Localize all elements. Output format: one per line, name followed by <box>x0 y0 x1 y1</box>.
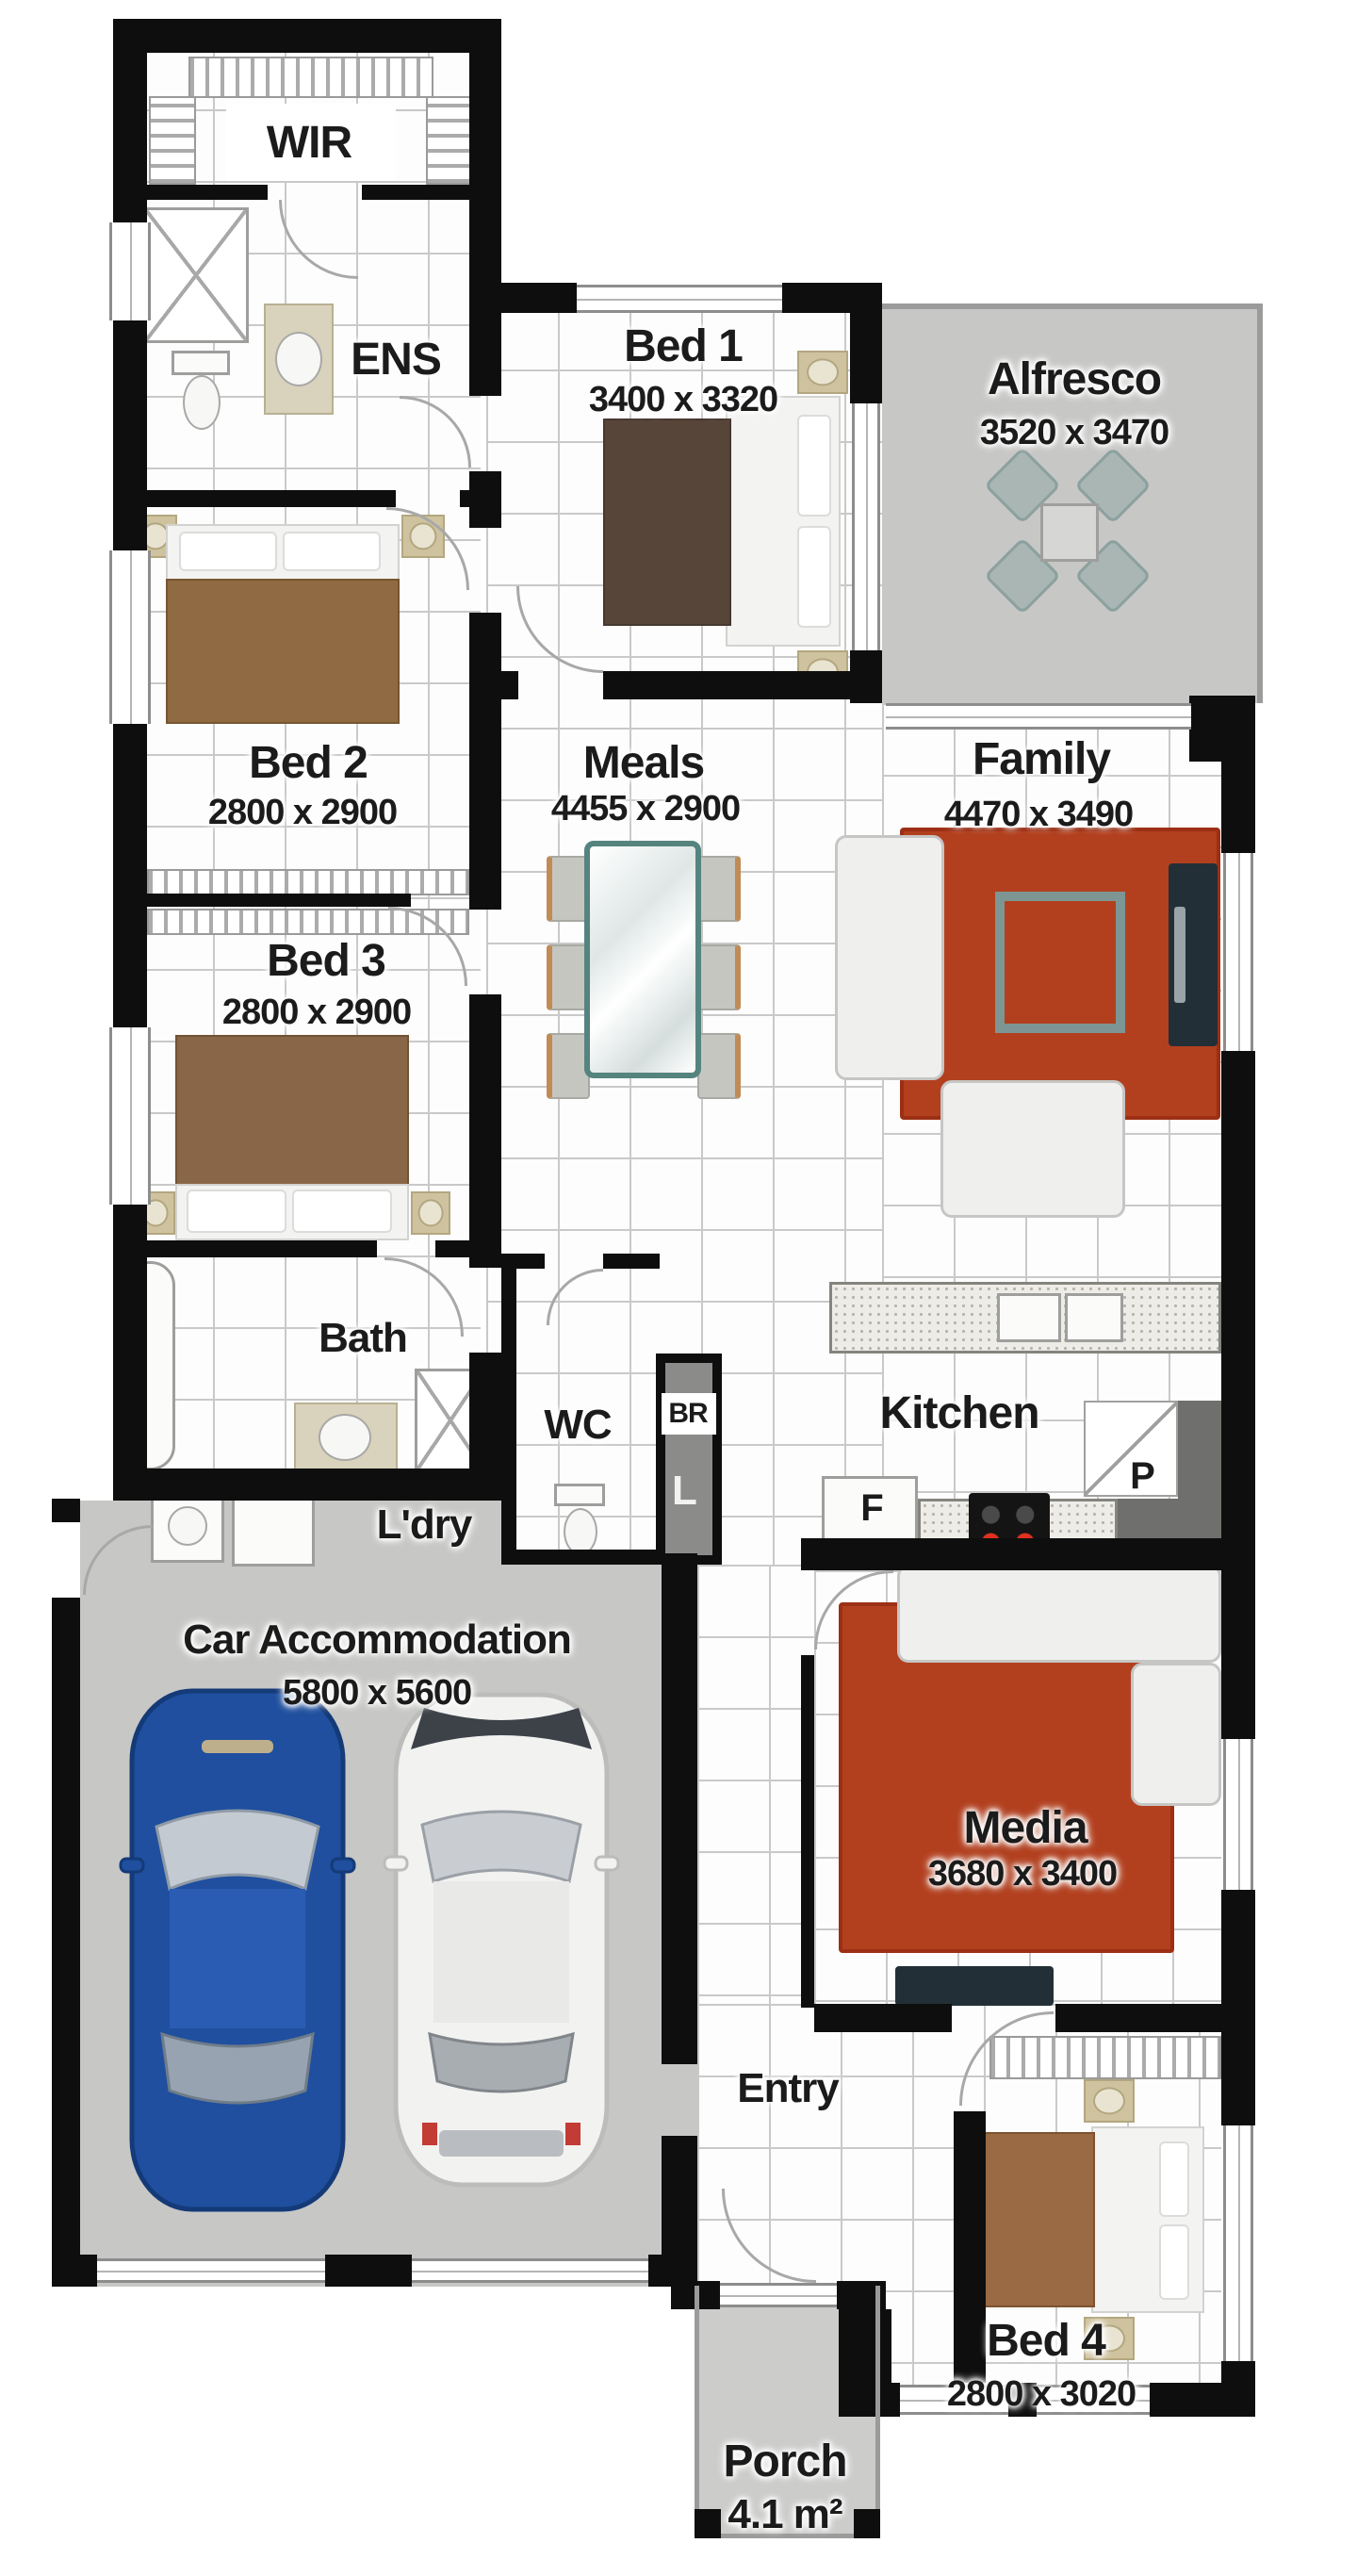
wall-segment <box>469 471 501 528</box>
room-label-linen: L <box>672 1470 696 1512</box>
media-sofa-right <box>1131 1663 1221 1806</box>
family-coffee-table <box>995 892 1125 1033</box>
bed1-pillow <box>797 526 831 628</box>
wall-segment <box>603 1254 660 1269</box>
floor-hall <box>697 1565 814 2008</box>
wir-shelving <box>188 57 433 98</box>
family-sofa-left <box>835 835 944 1080</box>
wall-segment <box>469 994 501 1268</box>
window-media <box>1223 1739 1253 1890</box>
meals-chair <box>697 944 741 1010</box>
wall-segment <box>662 1553 697 2064</box>
broom-closet <box>665 1363 712 1555</box>
wall-segment <box>147 1240 377 1257</box>
room-label-bed3: Bed 3 <box>267 939 385 984</box>
wall-segment <box>469 613 501 910</box>
wall-segment <box>1150 2383 1255 2417</box>
alfresco-table <box>1040 503 1099 562</box>
porch-edge <box>695 2286 699 2538</box>
room-label-meals: Meals <box>583 741 704 786</box>
car-white <box>383 1687 620 2192</box>
bed4-blanket <box>980 2132 1095 2307</box>
bed3-blanket <box>175 1035 409 1188</box>
window-ens <box>109 222 151 320</box>
wall-segment <box>469 19 501 396</box>
wall-segment <box>147 894 411 907</box>
porch-edge <box>875 2286 880 2538</box>
wall-segment <box>603 671 850 699</box>
ens-shower <box>143 207 249 343</box>
wall-segment <box>325 2255 412 2287</box>
bed3-side-table <box>411 1191 450 1235</box>
porch-post <box>854 2509 880 2538</box>
bed2-robe <box>147 869 469 895</box>
meals-chair <box>697 856 741 922</box>
room-label-wir: WIR <box>267 121 352 166</box>
room-label-ens: ENS <box>351 337 441 383</box>
laundry-trough-bowl <box>168 1506 207 1546</box>
family-tv <box>1174 907 1185 1003</box>
room-dims-bed3: 2800 x 2900 <box>222 994 411 1030</box>
bed1-pillow <box>797 415 831 517</box>
room-dims-bed1: 3400 x 3320 <box>589 382 777 418</box>
window-bed2 <box>109 550 151 724</box>
bed3-pillow <box>187 1190 286 1233</box>
window-bed1-alfresco <box>852 403 880 650</box>
room-dims-meals: 4455 x 2900 <box>551 791 740 827</box>
porch-post <box>695 2509 721 2538</box>
room-label-wc: WC <box>544 1404 611 1446</box>
room-label-media: Media <box>963 1806 1087 1851</box>
room-label-bath: Bath <box>319 1318 407 1359</box>
wall-segment <box>516 1254 545 1269</box>
wall-segment <box>801 1538 1244 1570</box>
wall-segment <box>113 1468 486 1501</box>
wall-segment <box>814 2004 952 2032</box>
room-dims-porch: 4.1 m² <box>728 2494 842 2535</box>
wall-segment <box>1055 2004 1221 2032</box>
wall-segment <box>52 1499 80 1522</box>
wc-toilet-tank <box>554 1484 605 1506</box>
wall-segment <box>113 19 501 53</box>
ens-toilet-tank <box>172 351 230 375</box>
wall-segment <box>362 185 484 200</box>
room-label-kitchen: Kitchen <box>879 1391 1038 1436</box>
label-fridge: F <box>860 1489 882 1527</box>
wall-segment <box>1221 1890 1255 2125</box>
bed2-pillow <box>283 532 381 571</box>
bed3-pillow <box>292 1190 392 1233</box>
room-dims-family: 4470 x 3490 <box>944 796 1133 832</box>
room-dims-garage: 5800 x 5600 <box>283 1675 471 1711</box>
wall-segment <box>501 1550 662 1565</box>
window-bed4-side <box>1223 2125 1253 2361</box>
room-label-family: Family <box>973 737 1110 782</box>
wall-segment <box>501 1254 516 1565</box>
room-label-broom: BR <box>668 1400 707 1428</box>
room-label-porch: Porch <box>723 2439 846 2485</box>
window-bed1 <box>577 285 782 313</box>
wall-segment <box>850 283 882 403</box>
ens-basin <box>275 332 322 386</box>
garage-door <box>412 2258 648 2283</box>
kitchen-sink <box>997 1293 1061 1342</box>
front-door-glazing <box>720 2283 837 2307</box>
wall-segment <box>839 2309 891 2417</box>
wall-segment <box>52 2255 97 2287</box>
garage-door <box>97 2258 325 2283</box>
bed1-side-table <box>797 351 848 394</box>
media-tv-unit <box>895 1966 1054 2006</box>
window-family <box>1223 853 1253 1051</box>
room-dims-media: 3680 x 3400 <box>928 1856 1117 1892</box>
bed2-pillow <box>179 532 277 571</box>
wall-segment <box>801 1655 814 2008</box>
room-label-bed4: Bed 4 <box>987 2319 1105 2364</box>
room-dims-bed2: 2800 x 2900 <box>208 795 397 830</box>
floor-plan: WIR ENS Bed 1 3400 x 3320 Alfresco 3520 … <box>0 0 1357 2576</box>
bed2-blanket <box>166 579 400 724</box>
sliding-door-alfresco <box>886 703 1191 730</box>
meals-table <box>584 841 701 1078</box>
room-label-bed2: Bed 2 <box>249 741 368 786</box>
room-label-bed1: Bed 1 <box>624 324 743 369</box>
media-sofa-top <box>897 1565 1221 1663</box>
room-label-garage: Car Accommodation <box>183 1619 571 1661</box>
kitchen-sink <box>1065 1293 1123 1342</box>
wall-segment <box>486 671 518 699</box>
room-dims-bed4: 2800 x 3020 <box>947 2376 1136 2412</box>
wir-shelving <box>149 96 196 185</box>
car-blue <box>119 1683 356 2217</box>
wall-segment <box>850 650 882 703</box>
wall-segment <box>147 490 396 507</box>
wall-segment <box>52 1598 80 2287</box>
alfresco-edge <box>882 304 1263 309</box>
bath-basin <box>319 1414 371 1461</box>
wall-segment <box>147 185 268 200</box>
wall-segment <box>1221 1051 1255 1739</box>
wall-segment <box>954 2111 986 2383</box>
meals-chair <box>697 1033 741 1099</box>
room-label-laundry: L'dry <box>377 1504 472 1546</box>
room-dims-alfresco: 3520 x 3470 <box>980 415 1169 451</box>
family-sofa-bottom <box>940 1080 1125 1218</box>
bed1-blanket <box>603 418 731 626</box>
kitchen-counter-dark <box>1178 1401 1221 1499</box>
bed4-side-table <box>1084 2079 1135 2123</box>
wc-toilet-bowl <box>564 1508 597 1555</box>
room-label-entry: Entry <box>737 2068 838 2109</box>
wall-segment <box>1221 703 1255 853</box>
bed4-pillow <box>1159 2141 1189 2217</box>
room-label-alfresco: Alfresco <box>988 357 1161 402</box>
bed4-pillow <box>1159 2224 1189 2300</box>
label-pantry: P <box>1130 1457 1154 1495</box>
wall-segment <box>486 283 577 313</box>
ens-toilet-bowl <box>183 375 221 430</box>
alfresco-edge <box>1257 304 1263 703</box>
window-bed3 <box>109 1027 151 1205</box>
wall-segment <box>469 1353 501 1501</box>
